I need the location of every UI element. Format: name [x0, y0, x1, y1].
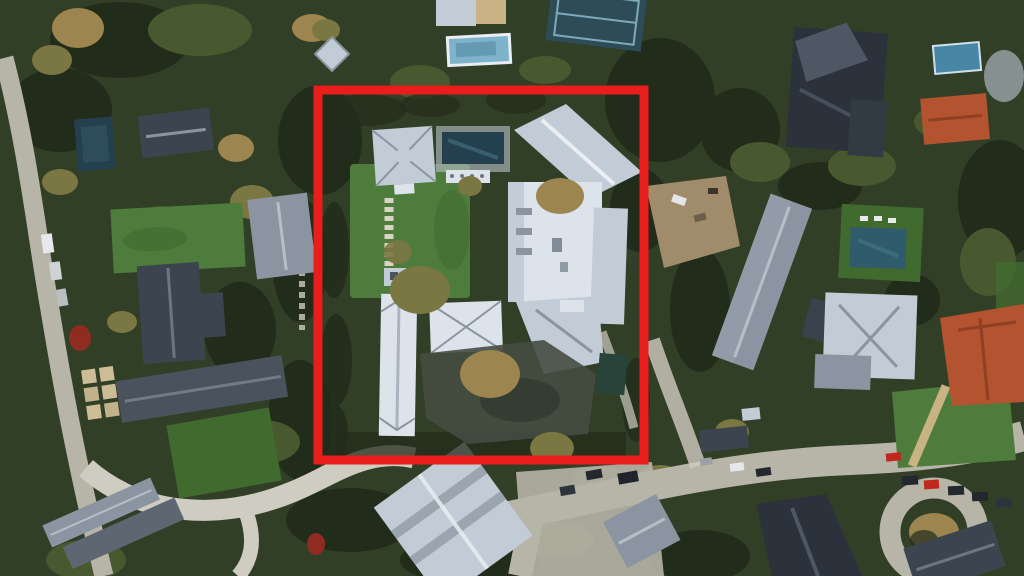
north-pool [447, 34, 510, 65]
northeast-dark-mansion [786, 19, 893, 158]
estate-mid-pavilion [429, 301, 503, 353]
far-right-roof-fragment [984, 50, 1024, 102]
north-white-outbuilding [436, 0, 476, 26]
north-courtyard [476, 0, 506, 24]
aerial-photo-stage [0, 0, 1024, 576]
northeast-pool [933, 42, 981, 74]
west-estate-gray-house [247, 193, 316, 280]
estate-west-wing [379, 294, 417, 437]
west-estate-lawn [110, 203, 245, 274]
northeast-terracotta-house [920, 93, 990, 145]
northwest-pool [74, 116, 116, 171]
east-terracotta-mansion [940, 304, 1024, 406]
northwest-house [138, 108, 215, 158]
aerial-photo [0, 0, 1024, 576]
east-gray-mansion [814, 292, 917, 391]
east-edge-green [996, 262, 1024, 312]
estate-hedge-pool [596, 353, 627, 395]
red-shrub [69, 325, 91, 351]
red-shrub-south [307, 533, 325, 555]
